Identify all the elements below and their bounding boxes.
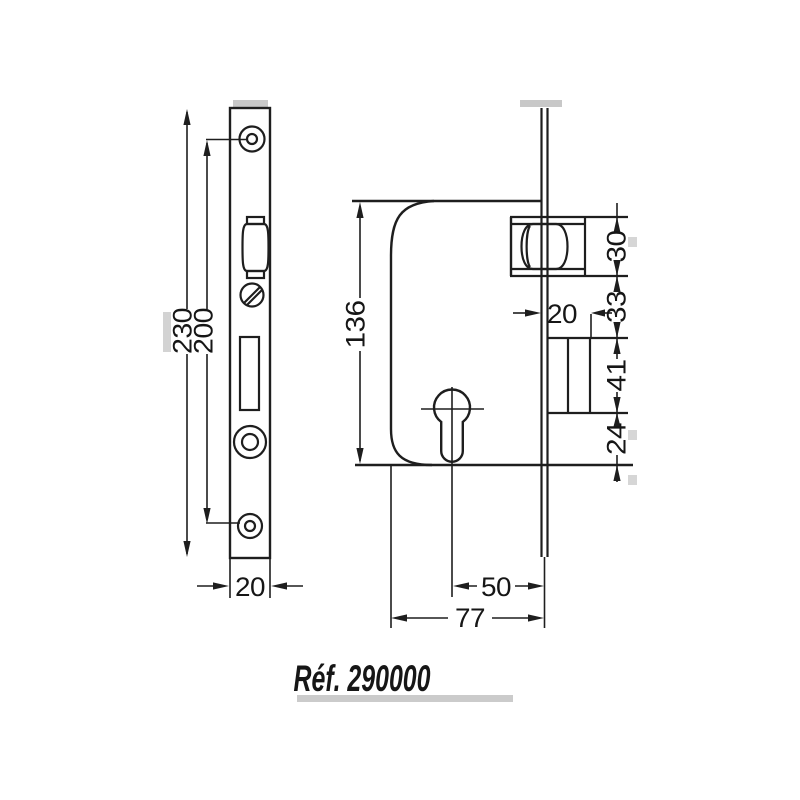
arrowhead-down (203, 508, 210, 524)
arrowhead-up (613, 276, 620, 292)
dimension-deadbolt-throw: 20 (513, 299, 612, 339)
product-reference-label: Réf. 290000 (294, 658, 431, 699)
scan-artifact (520, 100, 562, 107)
arrowhead-left (453, 582, 469, 589)
dimension-chain-right: 30 33 41 24 (601, 203, 631, 482)
arrowhead-right (528, 614, 544, 621)
lower-hole (234, 426, 266, 458)
arrowhead-down (613, 397, 620, 413)
arrowhead-down (183, 541, 190, 557)
screw-head (241, 284, 264, 307)
dimension-backset: 50 (453, 572, 544, 602)
euro-cylinder-profile (421, 387, 484, 597)
case-bottom-left-corner (391, 429, 432, 465)
arrowhead-down (613, 322, 620, 338)
dimension-label-20-width: 20 (235, 572, 265, 602)
dimension-label-50: 50 (481, 572, 511, 602)
dimension-case-depth: 77 (391, 603, 544, 633)
deadbolt-cutout (240, 337, 259, 410)
dimension-label-20-throw: 20 (547, 299, 577, 329)
dimension-label-24: 24 (601, 422, 631, 455)
dimension-label-30: 30 (601, 231, 631, 263)
dimension-label-136: 136 (340, 301, 370, 349)
arrowhead-up (613, 338, 620, 354)
faceplate-front-view (230, 108, 270, 598)
arrowhead-right (213, 582, 229, 589)
arrowhead-up (183, 109, 190, 125)
bottom-screw-hole-outer (238, 514, 262, 538)
dimension-screw-spacing: 200 (188, 140, 246, 525)
arrowhead-down (356, 448, 363, 464)
arrowhead-right (528, 582, 544, 589)
arrowhead-up (613, 465, 620, 481)
faceplate-outline (230, 108, 270, 558)
roller-latch-front (243, 217, 269, 278)
bottom-screw-hole (238, 514, 262, 538)
arrowhead-left (391, 614, 407, 621)
latch-roller-barrel (243, 224, 269, 271)
dimension-label-77: 77 (455, 603, 485, 633)
dimension-case-height: 136 (340, 202, 370, 464)
lock-case-side-view (352, 108, 633, 628)
arrowhead-up (356, 202, 363, 218)
dimension-label-200: 200 (188, 308, 218, 354)
lower-hole-outer (234, 426, 266, 458)
scan-artifact (233, 100, 268, 107)
lower-hole-inner (242, 434, 258, 450)
bottom-screw-hole-inner (245, 521, 255, 531)
lock-technical-drawing: 230 200 20 (0, 0, 800, 800)
case-top-left-corner (391, 201, 434, 256)
latch-roller-inner-curve (527, 226, 530, 267)
top-screw-hole-inner (247, 134, 257, 144)
arrowhead-right (525, 309, 541, 316)
dimension-plate-width: 20 (197, 572, 303, 602)
arrowhead-up (203, 140, 210, 156)
lock-technical-drawing-page: 230 200 20 (0, 0, 800, 800)
latch-bottom-cap (247, 271, 264, 278)
dimension-label-33: 33 (601, 291, 631, 323)
dimension-label-41: 41 (601, 360, 631, 392)
arrowhead-left (271, 582, 287, 589)
scan-artifact (628, 475, 637, 485)
